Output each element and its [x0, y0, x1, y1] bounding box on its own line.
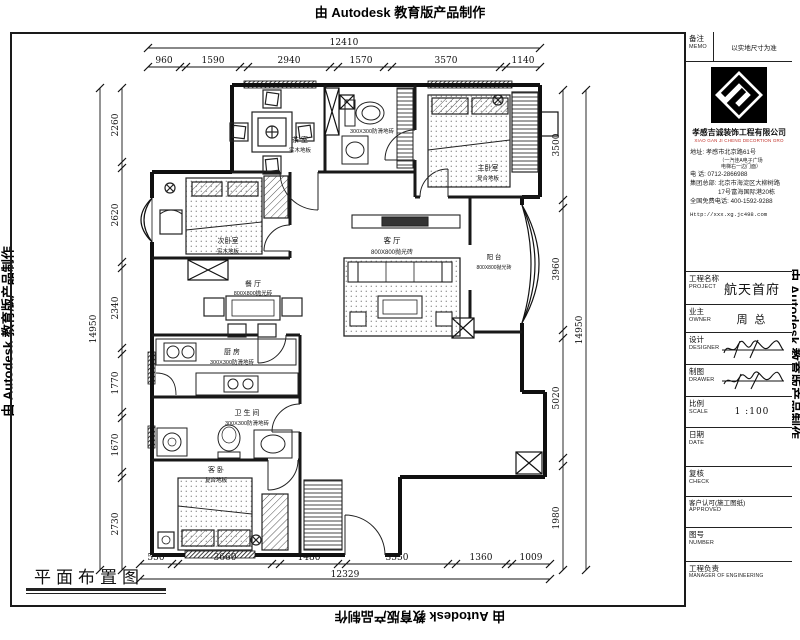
approved-row: 客户认可(施工图纸)APPROVED	[686, 497, 792, 528]
company-contact: 地址: 孝感市北京路61号 （一汽佳A电子广场 电梯右一边门面） 电 话: 07…	[686, 149, 792, 219]
entry-shoe-cabinet	[304, 480, 342, 550]
svg-text:3960: 3960	[552, 257, 562, 280]
living-room-furniture	[344, 215, 460, 336]
room-floor: 800X800抛光砖	[234, 289, 273, 297]
room-floor: 300X300防滑地砖	[210, 358, 255, 366]
svg-text:5020: 5020	[552, 386, 562, 409]
svg-text:1670: 1670	[111, 433, 121, 456]
title-underline	[26, 588, 166, 591]
room-floor: 实木地板	[217, 247, 240, 255]
cad-sheet: 由 Autodesk 教育版产品制作 由 Autodesk 教育版产品制作 由 …	[0, 0, 800, 640]
memo-label: 备注 MEMO	[686, 32, 714, 61]
dim-bottom-overall: 12329	[331, 570, 360, 580]
svg-text:1009: 1009	[520, 553, 543, 563]
bathroom-top-fixtures	[342, 88, 413, 168]
svg-text:3550: 3550	[386, 553, 409, 563]
dining-furniture	[204, 296, 302, 337]
svg-text:2260: 2260	[111, 113, 121, 136]
svg-text:1590: 1590	[202, 56, 225, 66]
bay-window-left	[141, 198, 152, 242]
balcony-bay-window	[522, 205, 539, 323]
room-floor: 300X300防滑地砖	[225, 419, 270, 427]
room-name: 客 卧	[208, 465, 224, 474]
designer-row: 设计DESIGNER	[686, 333, 792, 365]
column-entry	[516, 452, 542, 474]
master-bedroom-furniture	[428, 92, 538, 187]
shaft-box	[325, 88, 339, 135]
room-name: 卫 生 间	[235, 408, 260, 417]
company-logo	[710, 66, 768, 124]
svg-text:3500: 3500	[552, 133, 562, 156]
drawer-row: 制图DRAWER	[686, 365, 792, 397]
room-floor: 复合地板	[205, 476, 228, 484]
room-floor: 复合地板	[477, 174, 500, 182]
room-floor: 300X300防滑地砖	[350, 127, 395, 135]
shaft-box-small	[340, 95, 354, 109]
svg-text:2620: 2620	[111, 203, 121, 226]
project-row: 工程名称PROJECT 航天首府	[686, 272, 792, 305]
manager-row: 工程负责MANAGER OF ENGINEERING	[686, 562, 792, 607]
owner-row: 业主OWNER 周 总	[686, 305, 792, 333]
room-name: 主卧室	[478, 163, 499, 172]
kitchen-furniture	[156, 339, 298, 395]
drawer-signature	[720, 369, 786, 393]
title-underline-thin	[26, 593, 166, 594]
project-name: 航天首府	[716, 272, 788, 304]
svg-text:1140: 1140	[512, 56, 535, 66]
svg-text:2340: 2340	[111, 296, 121, 319]
company-website: Http://xxx.xg.jc498.com	[690, 211, 792, 219]
drawing-title: 平面布置图	[34, 563, 144, 588]
company-name: 孝感吉诚装饰工程有限公司	[690, 126, 788, 137]
company-name-en: XIAO GAN JI CHENG DECORTION GRO	[691, 138, 786, 143]
svg-text:1570: 1570	[350, 56, 373, 66]
tea-room-furniture	[230, 90, 314, 174]
company-block: 孝感吉诚装饰工程有限公司 XIAO GAN JI CHENG DECORTION…	[686, 62, 792, 272]
floor-plan-canvas: 茶 室 实木地板 300X300防滑地砖 主卧室 复合地板 次卧室 实木地板 餐…	[0, 0, 800, 640]
svg-text:1980: 1980	[552, 506, 562, 529]
room-name: 阳 台	[487, 252, 502, 261]
column-dining	[188, 260, 228, 280]
svg-text:1770: 1770	[111, 371, 121, 394]
room-floor: 实木地板	[289, 146, 312, 154]
svg-text:2730: 2730	[111, 512, 121, 535]
date-row: 日期DATE	[686, 428, 792, 467]
ceiling-lamp-icon	[165, 183, 175, 193]
scale-value: 1 :100	[716, 397, 788, 427]
owner-name: 周 总	[716, 305, 788, 332]
svg-text:2940: 2940	[278, 56, 301, 66]
designer-signature	[720, 337, 786, 361]
room-floor: 800X800抛光砖	[371, 248, 413, 256]
svg-text:3660: 3660	[214, 553, 237, 563]
check-row: 复核CHECK	[686, 467, 792, 497]
room-name: 次卧室	[218, 236, 239, 245]
dim-right-overall: 14950	[575, 315, 585, 344]
room-floor: 800X800抛光砖	[476, 264, 511, 271]
svg-text:550: 550	[147, 553, 164, 563]
room-name: 厨 房	[224, 347, 240, 356]
dim-left-overall: 14950	[89, 314, 99, 343]
svg-text:960: 960	[155, 56, 172, 66]
memo-row: 备注 MEMO 以实地尺寸为准	[686, 32, 792, 62]
room-name: 客 厅	[383, 235, 401, 245]
memo-value: 以实地尺寸为准	[716, 32, 792, 61]
room-name: 餐 厅	[245, 279, 261, 288]
number-row: 图号NUMBER	[686, 528, 792, 562]
svg-text:1480: 1480	[298, 553, 321, 563]
svg-text:1360: 1360	[470, 553, 493, 563]
room-name: 茶 室	[292, 135, 308, 144]
logo-icon	[710, 66, 768, 124]
svg-text:3570: 3570	[435, 56, 458, 66]
bathroom2-fixtures	[157, 425, 292, 458]
title-block: 备注 MEMO 以实地尺寸为准 孝感吉诚装饰工程有限公司 XIAO GAN JI…	[684, 32, 792, 607]
dim-top-overall: 12410	[330, 38, 359, 48]
scale-row: 比例SCALE 1 :100	[686, 397, 792, 428]
